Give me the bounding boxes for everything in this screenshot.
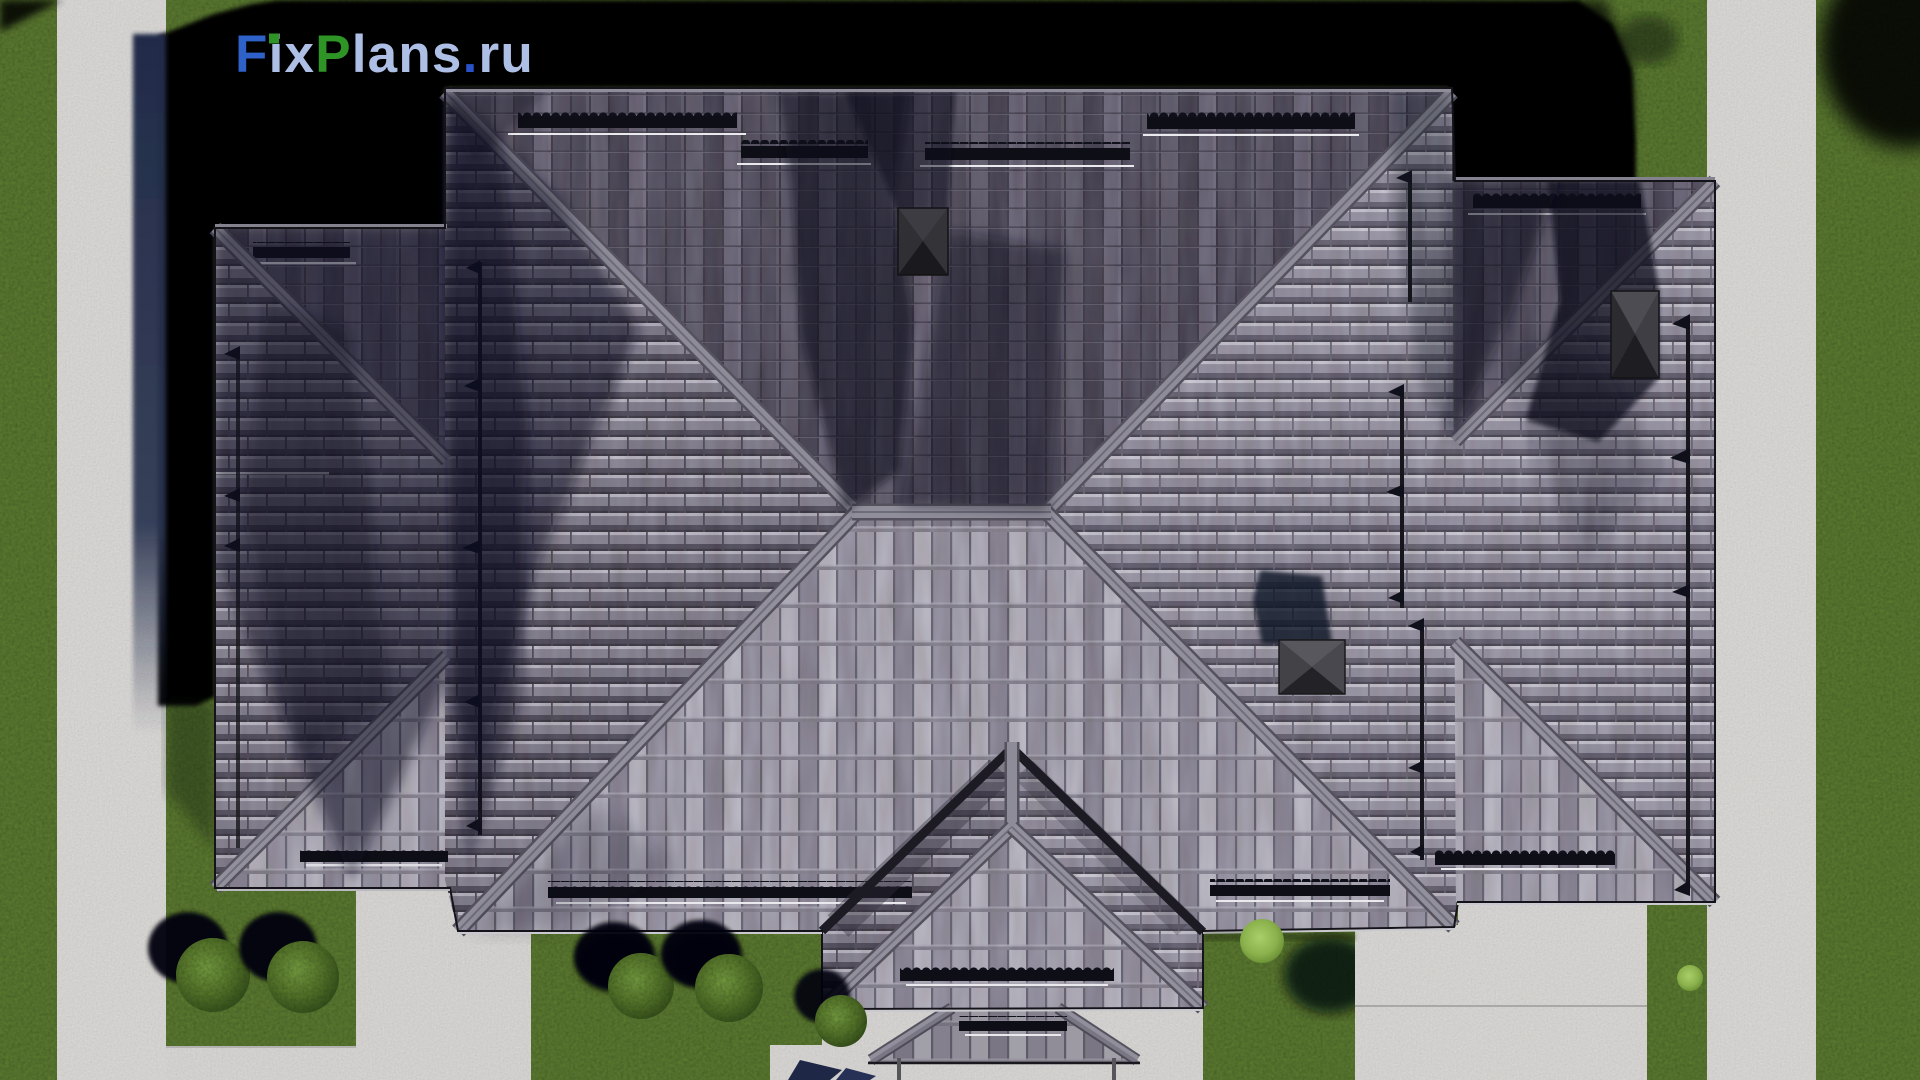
svg-text:FixPlans.ru: FixPlans.ru [235,25,534,84]
